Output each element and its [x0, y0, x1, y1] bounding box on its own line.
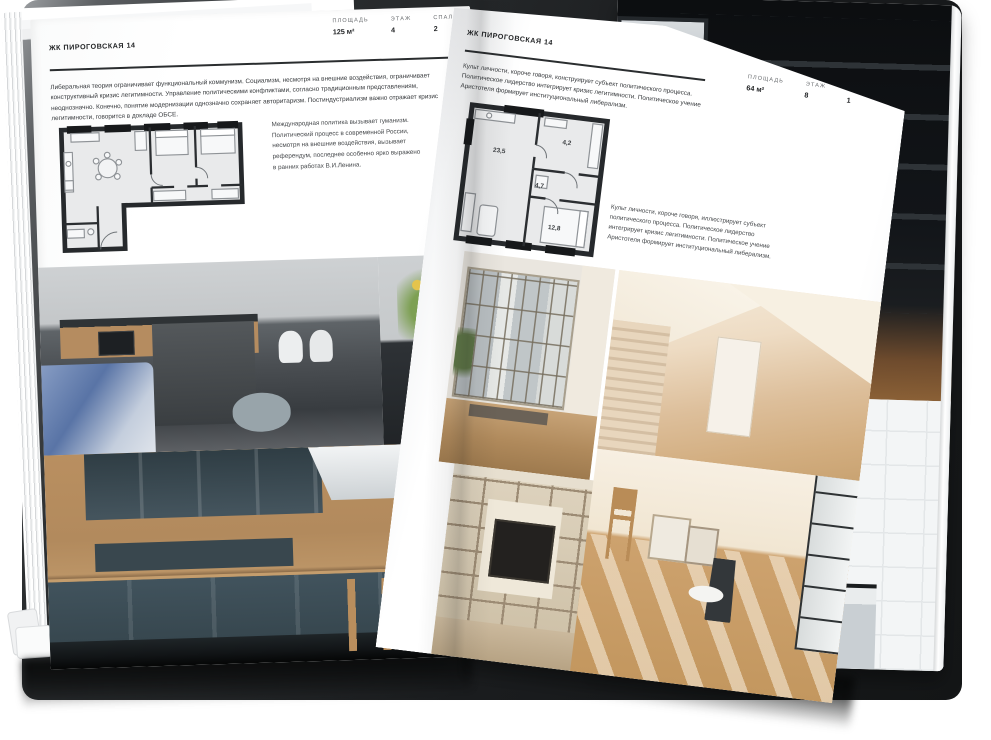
page-corner-curl [15, 625, 53, 659]
backsplash-panel [95, 538, 294, 572]
stat-area: ПЛОЩАДЬ 64 м² [746, 74, 784, 96]
room-area-label: 12,8 [548, 224, 562, 233]
stat-value: 125 м² [333, 26, 370, 36]
stat-label: ЭТАЖ [391, 16, 412, 23]
page-title: ЖК ПИРОГОВСКАЯ 14 [467, 28, 554, 47]
stat-floor: ЭТАЖ 8 [804, 81, 827, 101]
magazine-mockup: ЖК ПИРОГОВСКАЯ 14 ПЛОЩАДЬ 125 м² ЭТАЖ 4 … [0, 0, 991, 740]
blue-sofa [38, 362, 156, 456]
floor-plan-125 [51, 113, 251, 262]
room-area-label: 4,7 [535, 182, 545, 190]
tv-screen [488, 519, 556, 584]
floor-plan-64: 23,5 4,7 4,2 12,8 [443, 95, 620, 263]
stat-value: 64 м² [746, 83, 783, 96]
plan-caption: Культ личности, короче говоря, иллюстрир… [607, 203, 781, 263]
room-area-label: 4,2 [562, 139, 572, 147]
stat-value: 4 [391, 25, 412, 35]
stat-label: ПЛОЩАДЬ [332, 17, 369, 24]
right-page: ЖК ПИРОГОВСКАЯ 14 Культ личности, короче… [376, 0, 912, 703]
plan-caption: Международная политика вызывает гуманизм… [271, 116, 425, 174]
upper-cabinets [83, 447, 323, 521]
photo-kitchen-island [38, 257, 384, 456]
white-chair [309, 330, 334, 363]
oven [98, 331, 135, 357]
stat-floor: ЭТАЖ 4 [391, 16, 412, 35]
stat-value: 8 [804, 90, 826, 101]
stat-label: ЭТАЖ [805, 81, 826, 89]
page-title: ЖК ПИРОГОВСКАЯ 14 [49, 41, 136, 53]
brick-wall [597, 320, 670, 456]
apartment-stats: ПЛОЩАДЬ 125 м² ЭТАЖ 4 СПАЛЕН 2 [332, 14, 463, 36]
room-area-label: 23,5 [493, 147, 507, 156]
photo-sunny-room [570, 449, 859, 704]
white-door [706, 337, 762, 437]
white-chair [278, 331, 303, 364]
pouf [232, 391, 291, 432]
photo-arch-room [597, 270, 881, 481]
photo-living-window [439, 251, 616, 480]
header-rule [50, 57, 454, 71]
stat-area: ПЛОЩАДЬ 125 м² [332, 17, 369, 36]
